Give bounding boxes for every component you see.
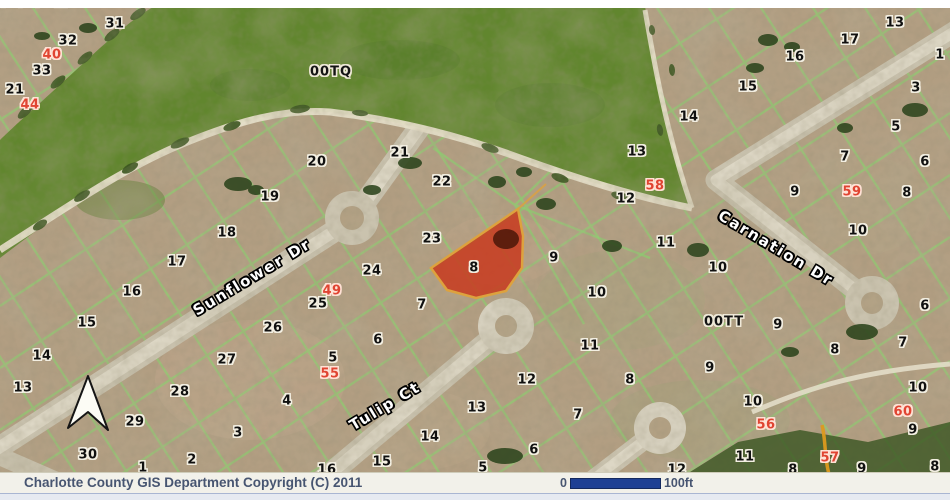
gis-map-viewer: MFRML 3132403321442019181716151413212223…: [0, 0, 950, 500]
scale-start-label: 0: [560, 476, 567, 490]
footer-bar: Charlotte County GIS Department Copyrigh…: [0, 472, 950, 494]
scale-bar: 0 100ft: [560, 476, 693, 490]
tree-in-parcel: [493, 229, 519, 249]
scale-end-label: 100ft: [664, 476, 693, 490]
copyright-text: Charlotte County GIS Department Copyrigh…: [24, 475, 362, 490]
bottom-strip: [0, 493, 950, 500]
map-canvas[interactable]: [0, 0, 950, 500]
scale-bar-fill: [570, 478, 661, 489]
